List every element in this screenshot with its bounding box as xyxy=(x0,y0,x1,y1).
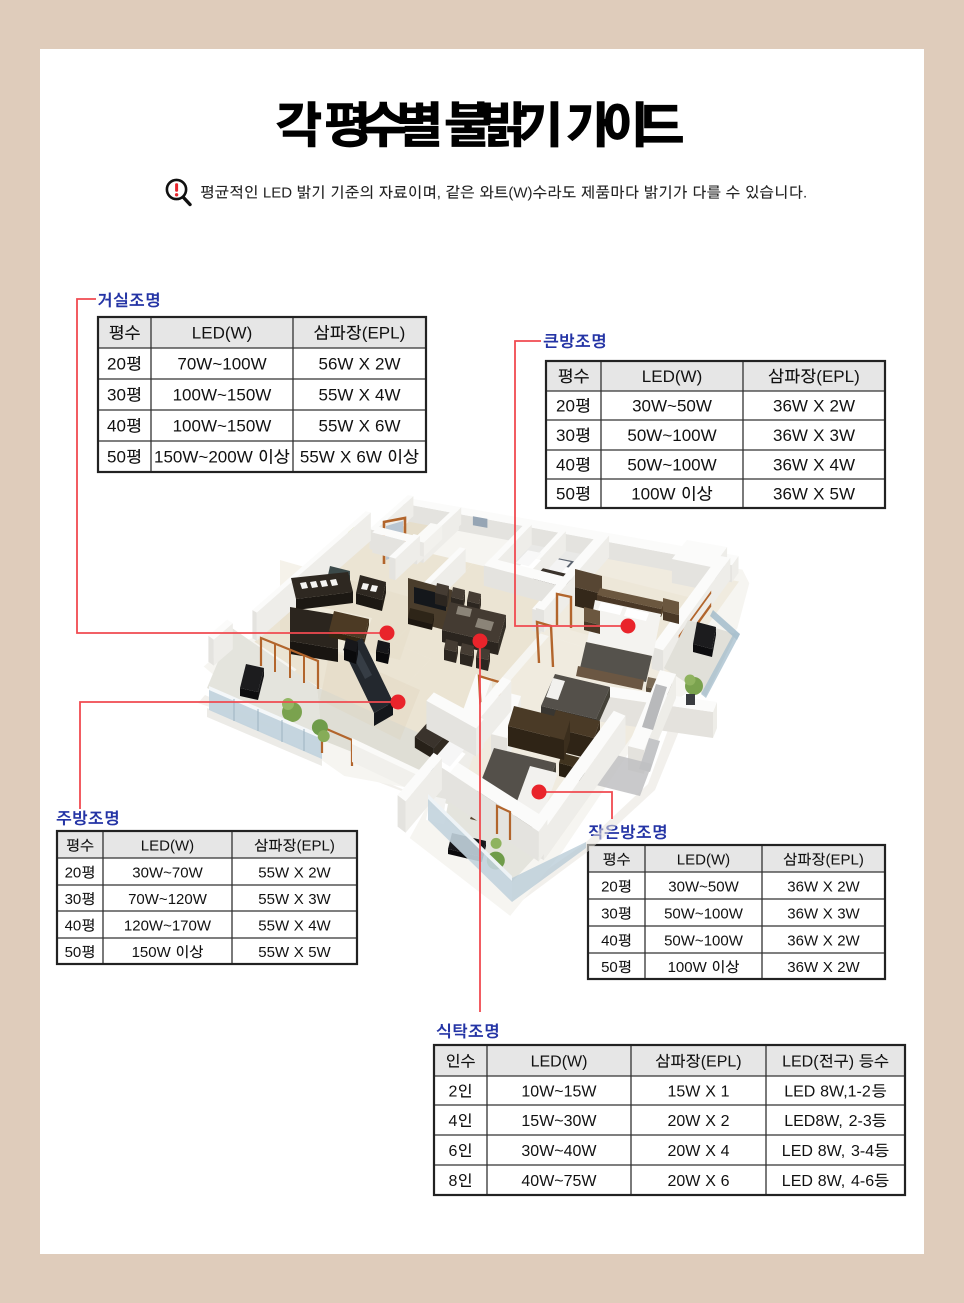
svg-text:150W~200W: 150W~200W xyxy=(154,448,253,467)
svg-text:36W: 36W xyxy=(773,485,808,504)
svg-text:2-3: 2-3 xyxy=(849,1113,872,1130)
svg-text:X: X xyxy=(813,426,824,445)
svg-text:X: X xyxy=(359,355,370,374)
svg-text:40: 40 xyxy=(601,933,618,950)
svg-text:2W: 2W xyxy=(837,879,860,896)
svg-text:): ) xyxy=(849,1054,854,1071)
svg-text:4W: 4W xyxy=(375,386,401,405)
svg-text:20: 20 xyxy=(601,879,618,896)
svg-text:100W~150W: 100W~150W xyxy=(173,417,272,436)
svg-text:X: X xyxy=(294,865,304,882)
svg-text:X: X xyxy=(823,959,833,976)
svg-text:150W: 150W xyxy=(132,944,172,961)
svg-text:2W: 2W xyxy=(308,865,331,882)
svg-text:2W: 2W xyxy=(375,355,401,374)
svg-text:LED(W): LED(W) xyxy=(141,838,194,855)
svg-text:55W: 55W xyxy=(258,865,290,882)
svg-text:LED(: LED( xyxy=(782,1054,819,1071)
svg-text:50W~100W: 50W~100W xyxy=(627,426,716,445)
svg-text:LED(W): LED(W) xyxy=(677,852,730,869)
svg-text:X: X xyxy=(823,933,833,950)
svg-text:LED(W): LED(W) xyxy=(642,367,702,386)
svg-text:55W: 55W xyxy=(258,944,290,961)
svg-text:3W: 3W xyxy=(837,906,860,923)
svg-text:5W: 5W xyxy=(830,485,856,504)
svg-text:36W: 36W xyxy=(773,426,808,445)
svg-text:X: X xyxy=(705,1173,716,1190)
svg-text:X: X xyxy=(705,1113,716,1130)
svg-text:30W~40W: 30W~40W xyxy=(521,1143,597,1160)
svg-text:4-6: 4-6 xyxy=(851,1173,874,1190)
svg-text:6W: 6W xyxy=(356,448,382,467)
svg-text:30W~50W: 30W~50W xyxy=(668,879,739,896)
svg-text:50: 50 xyxy=(601,959,618,976)
svg-text:8W,1-2: 8W,1-2 xyxy=(820,1084,871,1101)
svg-text:36W: 36W xyxy=(787,879,819,896)
svg-text:40: 40 xyxy=(556,456,575,475)
svg-text:20W: 20W xyxy=(668,1113,702,1130)
svg-text:55W: 55W xyxy=(319,386,354,405)
svg-text:70W~100W: 70W~100W xyxy=(177,355,266,374)
svg-text:.: . xyxy=(803,185,807,202)
svg-text:120W~170W: 120W~170W xyxy=(124,918,212,935)
svg-text:40: 40 xyxy=(65,918,82,935)
svg-text:6: 6 xyxy=(721,1173,730,1190)
svg-text:1: 1 xyxy=(721,1084,730,1101)
svg-text:30: 30 xyxy=(601,906,618,923)
svg-text:70W~120W: 70W~120W xyxy=(128,891,208,908)
svg-text:X: X xyxy=(294,891,304,908)
svg-text:30W~70W: 30W~70W xyxy=(132,865,203,882)
svg-text:(EPL): (EPL) xyxy=(826,852,864,869)
svg-text:3W: 3W xyxy=(308,891,331,908)
svg-text:(EPL): (EPL) xyxy=(701,1054,742,1071)
svg-text:X: X xyxy=(340,448,351,467)
svg-text:30: 30 xyxy=(65,891,82,908)
svg-text:2W: 2W xyxy=(830,397,856,416)
svg-text:(EPL): (EPL) xyxy=(297,838,335,855)
svg-text:6W: 6W xyxy=(375,417,401,436)
svg-text:X: X xyxy=(813,485,824,504)
svg-text:56W: 56W xyxy=(319,355,354,374)
svg-text:2: 2 xyxy=(721,1113,730,1130)
svg-text:36W: 36W xyxy=(787,959,819,976)
svg-text:2W: 2W xyxy=(837,933,860,950)
svg-text:40: 40 xyxy=(107,417,126,436)
svg-text:X: X xyxy=(705,1084,716,1101)
svg-text:X: X xyxy=(705,1143,716,1160)
svg-text:LED: LED xyxy=(782,1143,813,1160)
svg-text:LED(W): LED(W) xyxy=(192,324,252,343)
svg-text:4: 4 xyxy=(449,1113,458,1130)
svg-text:100W: 100W xyxy=(668,959,708,976)
svg-text:100W~150W: 100W~150W xyxy=(173,386,272,405)
svg-text:100W: 100W xyxy=(631,485,675,504)
svg-text:4W: 4W xyxy=(308,918,331,935)
svg-text:15W~30W: 15W~30W xyxy=(521,1113,597,1130)
svg-text:36W: 36W xyxy=(773,397,808,416)
svg-text:LED(W): LED(W) xyxy=(531,1054,588,1071)
svg-text:20W: 20W xyxy=(668,1143,702,1160)
svg-text:2W: 2W xyxy=(837,959,860,976)
svg-text:36W: 36W xyxy=(773,456,808,475)
svg-text:4: 4 xyxy=(721,1143,730,1160)
svg-text:55W: 55W xyxy=(300,448,335,467)
svg-text:LED: LED xyxy=(782,1173,813,1190)
svg-text:20W: 20W xyxy=(668,1173,702,1190)
svg-text:20: 20 xyxy=(65,865,82,882)
svg-text:8W,: 8W, xyxy=(818,1143,846,1160)
svg-text:X: X xyxy=(813,397,824,416)
svg-text:20: 20 xyxy=(556,397,575,416)
svg-text:5W: 5W xyxy=(308,944,331,961)
svg-text:55W: 55W xyxy=(258,891,290,908)
svg-text:X: X xyxy=(294,918,304,935)
svg-text:X: X xyxy=(359,417,370,436)
svg-text:,: , xyxy=(437,185,441,202)
svg-text:10W~15W: 10W~15W xyxy=(521,1084,597,1101)
svg-text:2: 2 xyxy=(449,1084,458,1101)
svg-text:6: 6 xyxy=(449,1143,458,1160)
svg-text:LED: LED xyxy=(784,1084,815,1101)
svg-text:(W): (W) xyxy=(508,185,532,202)
svg-text:40W~75W: 40W~75W xyxy=(521,1173,597,1190)
svg-text:15W: 15W xyxy=(668,1084,702,1101)
svg-text:30: 30 xyxy=(556,426,575,445)
svg-text:50W~100W: 50W~100W xyxy=(664,906,744,923)
svg-text:8: 8 xyxy=(449,1173,458,1190)
svg-text:X: X xyxy=(813,456,824,475)
svg-text:X: X xyxy=(294,944,304,961)
svg-text:3W: 3W xyxy=(830,426,856,445)
svg-text:20: 20 xyxy=(107,355,126,374)
svg-text:4W: 4W xyxy=(830,456,856,475)
svg-text:50: 50 xyxy=(65,944,82,961)
svg-text:50W~100W: 50W~100W xyxy=(664,933,744,950)
svg-text:55W: 55W xyxy=(258,918,290,935)
svg-text:50: 50 xyxy=(556,485,575,504)
svg-text:(EPL): (EPL) xyxy=(362,324,405,343)
svg-text:LED8W,: LED8W, xyxy=(784,1113,843,1130)
svg-text:3-4: 3-4 xyxy=(851,1143,874,1160)
svg-text:8W,: 8W, xyxy=(818,1173,846,1190)
svg-text:36W: 36W xyxy=(787,906,819,923)
svg-text:55W: 55W xyxy=(319,417,354,436)
svg-text:50W~100W: 50W~100W xyxy=(627,456,716,475)
svg-text:30: 30 xyxy=(107,386,126,405)
svg-text:30W~50W: 30W~50W xyxy=(632,397,712,416)
svg-text:X: X xyxy=(823,879,833,896)
svg-text:X: X xyxy=(823,906,833,923)
svg-text:X: X xyxy=(359,386,370,405)
svg-text:LED: LED xyxy=(263,185,292,202)
svg-text:50: 50 xyxy=(107,448,126,467)
svg-text:(EPL): (EPL) xyxy=(816,367,859,386)
svg-text:36W: 36W xyxy=(787,933,819,950)
